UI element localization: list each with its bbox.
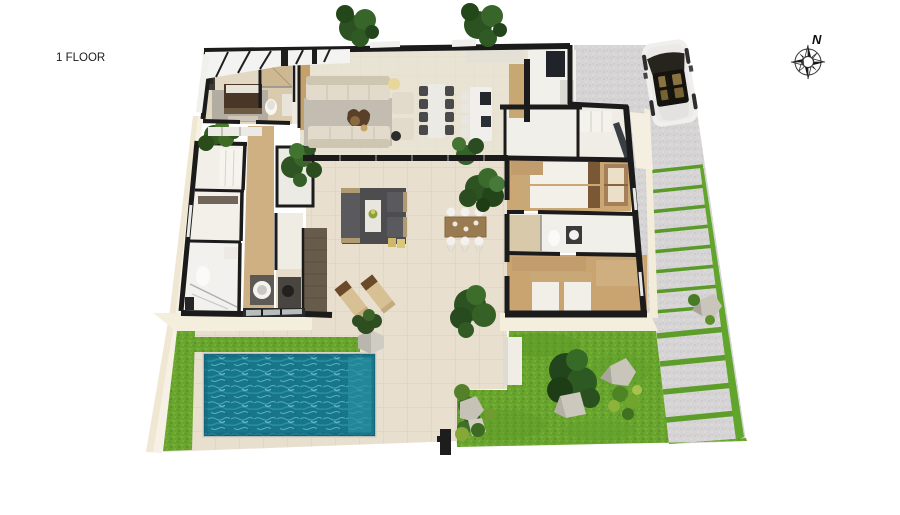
svg-text:1 FLOOR: 1 FLOOR <box>56 52 105 64</box>
svg-text:N: N <box>812 32 822 47</box>
